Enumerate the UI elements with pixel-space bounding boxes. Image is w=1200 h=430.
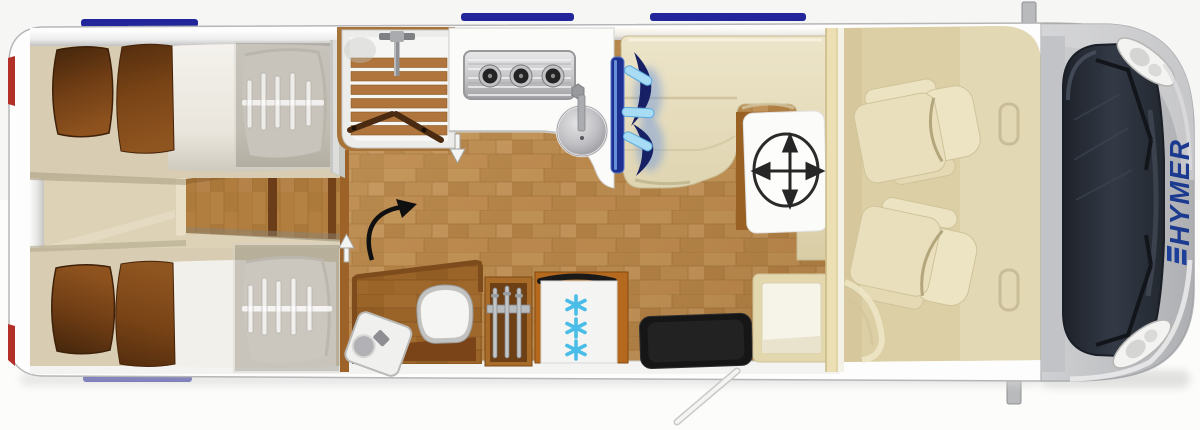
svg-text:HYMER: HYMER — [1164, 139, 1195, 246]
